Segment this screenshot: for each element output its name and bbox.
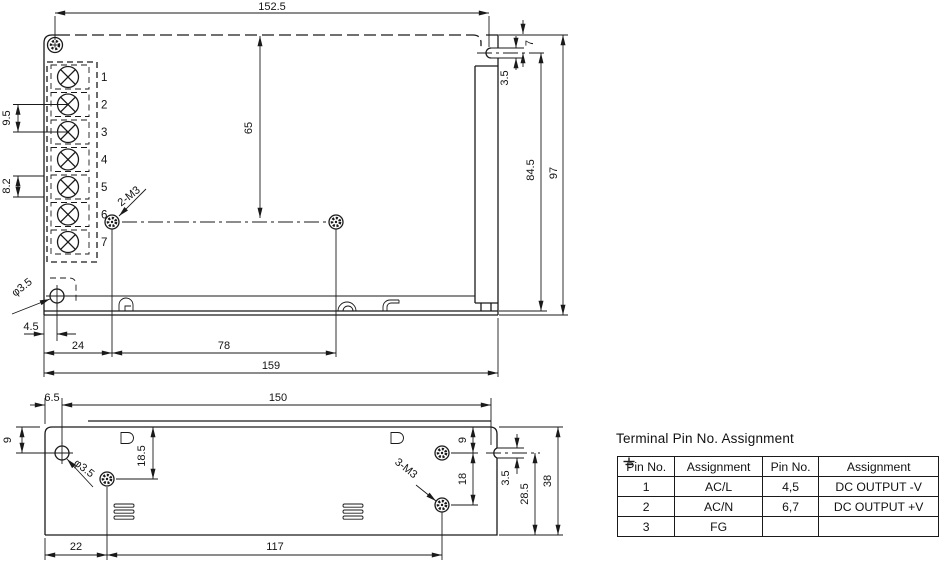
pin-table-title: Terminal Pin No. Assignment: [616, 431, 794, 446]
dim-hole-dia: φ3.5: [10, 276, 35, 299]
table-row: 3 FG: [618, 517, 939, 537]
mounting-hole: [51, 442, 73, 464]
terminal-pin-table: Pin No. Assignment Pin No. Assignment 1 …: [617, 456, 939, 537]
table-cell: AC/N: [675, 497, 763, 517]
table-header: Assignment: [675, 457, 763, 477]
dim-screw-spec-bottom: 3-M3: [392, 456, 419, 481]
mounting-screw-m3: [100, 472, 114, 486]
table-cell: 3: [618, 517, 675, 537]
d-cutout: [121, 433, 134, 444]
dim-keyhole-to-bottom: 28.5: [519, 483, 531, 504]
table-header: Pin No.: [762, 457, 818, 477]
terminal-4: [51, 148, 89, 172]
terminal-5: [51, 175, 89, 199]
earth-ground-icon: [622, 457, 636, 469]
dim-edge-to-screw-b: 22: [70, 541, 82, 553]
table-row: 1 AC/L 4,5 DC OUTPUT -V: [618, 477, 939, 497]
bottom-view-drawing: 6.5 150 9 φ3.5 18.5 9 18 3-M3 3.5 28.5 3…: [2, 392, 563, 560]
dim-overall-top: 152.5: [258, 1, 286, 13]
terminal-1: [51, 65, 89, 89]
dim-screw-span-b: 117: [266, 541, 284, 553]
chassis-tabs: [119, 298, 399, 311]
dim-terminal-pitch-b: 8.2: [1, 178, 13, 193]
table-header-row: Pin No. Assignment Pin No. Assignment: [618, 457, 939, 477]
table-row: 2 AC/N 6,7 DC OUTPUT +V: [618, 497, 939, 517]
dim-edge-to-hole: 9: [2, 437, 14, 443]
terminal-number: 1: [101, 72, 107, 84]
table-cell: AC/L: [675, 477, 763, 497]
table-cell: 4,5: [762, 477, 818, 497]
table-cell: 6,7: [762, 497, 818, 517]
dim-side-height: 84.5: [525, 159, 537, 180]
terminal-number: 3: [101, 127, 107, 139]
mechanical-drawing-page: 1 2 3 4 5 6 7: [0, 0, 939, 561]
table-cell: [762, 517, 818, 537]
dim-overall-height: 97: [548, 167, 560, 179]
dim-screw-pitch: 18: [457, 473, 469, 485]
terminal-6: [51, 203, 89, 227]
dim-notch-depth: 7: [524, 40, 536, 46]
terminal-number: 6: [101, 210, 107, 222]
terminal-7: [51, 230, 89, 254]
table-cell: 2: [618, 497, 675, 517]
dim-edge-to-screw: 18.5: [136, 445, 148, 466]
terminal-number: 4: [101, 155, 108, 167]
dim-terminal-pitch: 9.5: [1, 110, 13, 125]
dim-edge-to-screw: 24: [72, 340, 84, 352]
table-cell: DC OUTPUT +V: [819, 497, 939, 517]
table-header: Assignment: [819, 457, 939, 477]
table-cell: FG: [675, 517, 763, 537]
table-cell: [819, 517, 939, 537]
dim-keyhole-offset: 3.5: [499, 70, 511, 85]
top-view-drawing: 1 2 3 4 5 6 7: [1, 1, 568, 377]
mounting-screw-m3: [105, 215, 119, 229]
terminal-number: 7: [101, 237, 107, 249]
mounting-screw-m3: [435, 446, 449, 460]
mounting-screw-m3: [329, 215, 343, 229]
terminal-block: 1 2 3 4 5 6 7: [47, 62, 108, 262]
dim-edge-to-screw-right: 9: [457, 437, 469, 443]
dim-keyhole-offset-bottom: 3.5: [500, 470, 512, 485]
dim-overall-bottom: 159: [262, 360, 280, 372]
vent-slots: [114, 504, 363, 519]
table-cell: 1: [618, 477, 675, 497]
mounting-screw-m3: [435, 498, 449, 512]
dim-hole-span: 150: [269, 392, 287, 404]
dim-corner-to-hole: 6.5: [44, 392, 59, 404]
fg-label: FG: [710, 520, 727, 534]
table-cell: DC OUTPUT -V: [819, 477, 939, 497]
d-cutout: [391, 433, 404, 444]
dim-screw-span: 78: [218, 340, 230, 352]
dim-screw-line-from-top: 65: [243, 122, 255, 134]
dim-hole-inset: 4.5: [23, 321, 38, 333]
dim-overall-depth: 38: [542, 475, 554, 487]
terminal-number: 2: [101, 100, 107, 112]
terminal-number: 5: [101, 182, 107, 194]
